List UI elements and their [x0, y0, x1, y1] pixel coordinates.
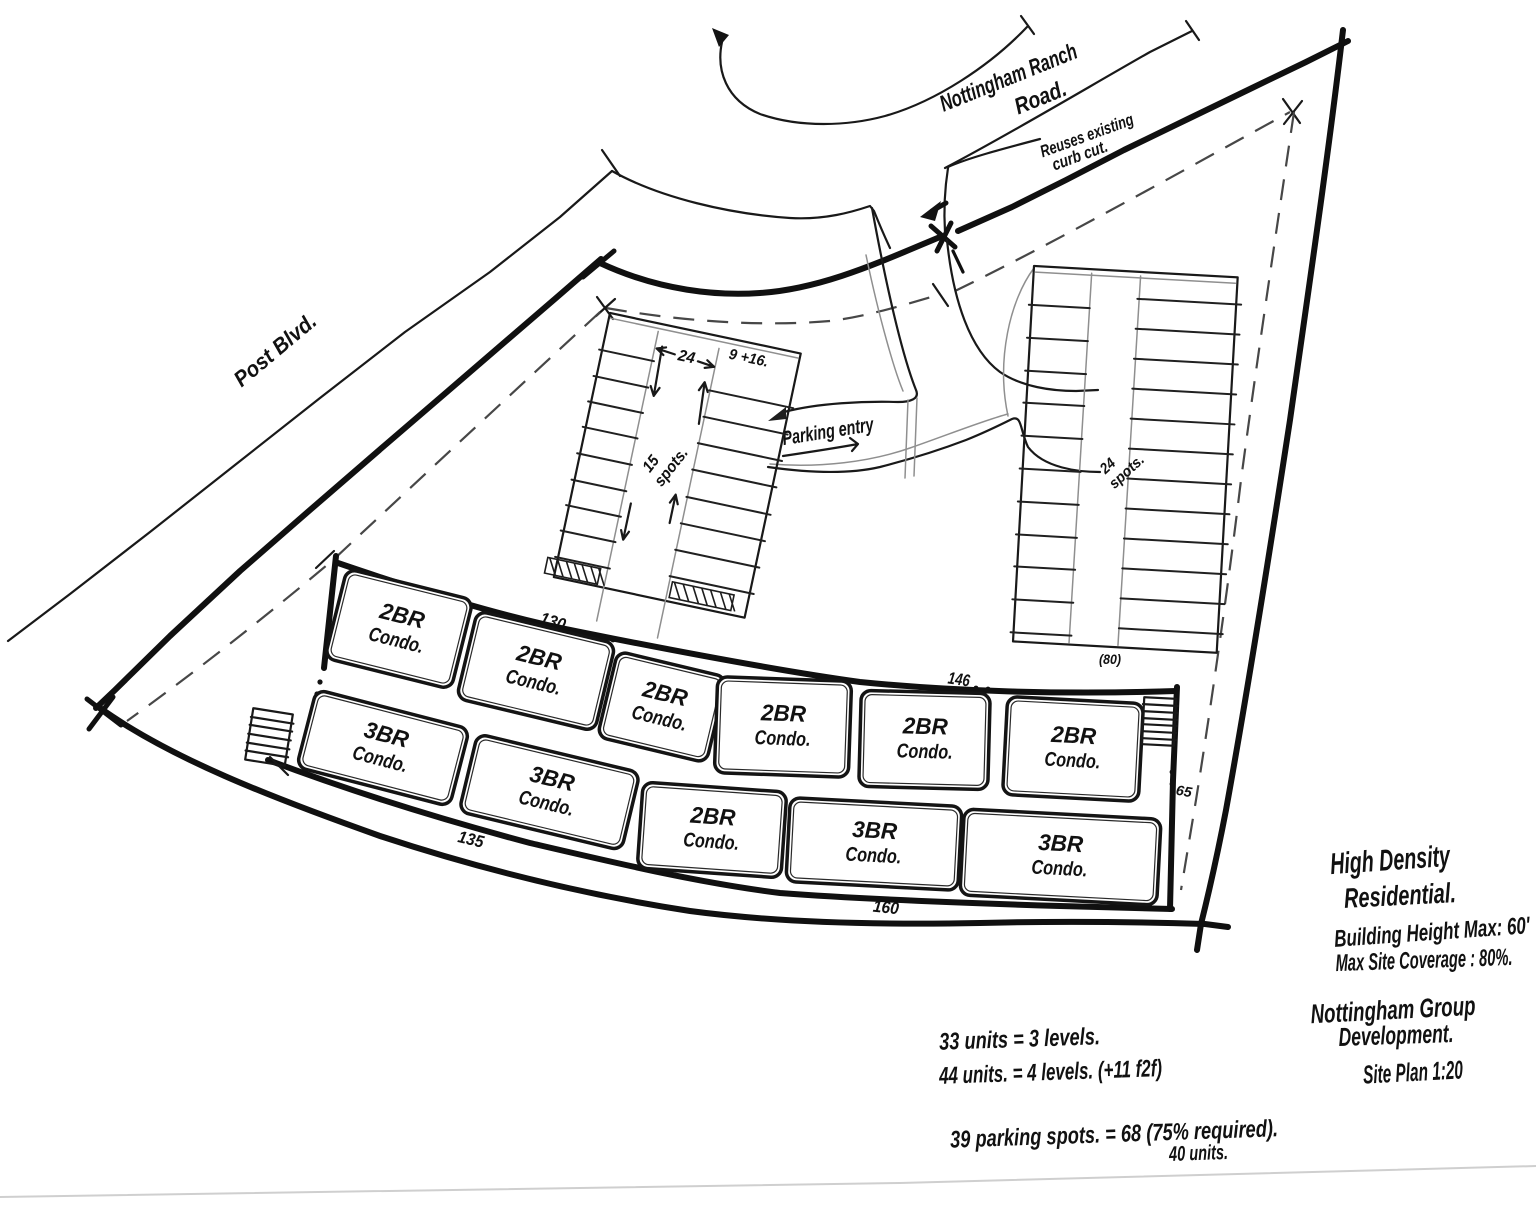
svg-text:Condo.: Condo.	[896, 740, 953, 763]
svg-text:Condo.: Condo.	[1044, 749, 1101, 774]
svg-text:2BR: 2BR	[760, 699, 807, 727]
svg-text:40 units.: 40 units.	[1168, 1141, 1228, 1166]
svg-text:3BR: 3BR	[852, 816, 899, 844]
svg-text:Development.: Development.	[1338, 1018, 1454, 1052]
svg-text:2BR: 2BR	[1050, 721, 1098, 749]
svg-text:Condo.: Condo.	[845, 844, 902, 869]
svg-text:33 units = 3 levels.: 33 units = 3 levels.	[939, 1023, 1101, 1056]
svg-text:Condo.: Condo.	[754, 727, 811, 751]
svg-text:Residential.: Residential.	[1343, 877, 1456, 914]
svg-text:(80): (80)	[1099, 651, 1121, 667]
svg-text:2BR: 2BR	[689, 801, 737, 830]
svg-text:Condo.: Condo.	[682, 829, 739, 855]
svg-text:146: 146	[947, 669, 972, 691]
svg-text:65: 65	[1175, 782, 1194, 801]
svg-text:Condo.: Condo.	[1031, 857, 1088, 882]
svg-text:Site Plan 1:20: Site Plan 1:20	[1362, 1054, 1464, 1089]
svg-text:160: 160	[872, 897, 900, 919]
svg-text:3BR: 3BR	[1038, 829, 1085, 857]
svg-text:2BR: 2BR	[902, 712, 949, 739]
